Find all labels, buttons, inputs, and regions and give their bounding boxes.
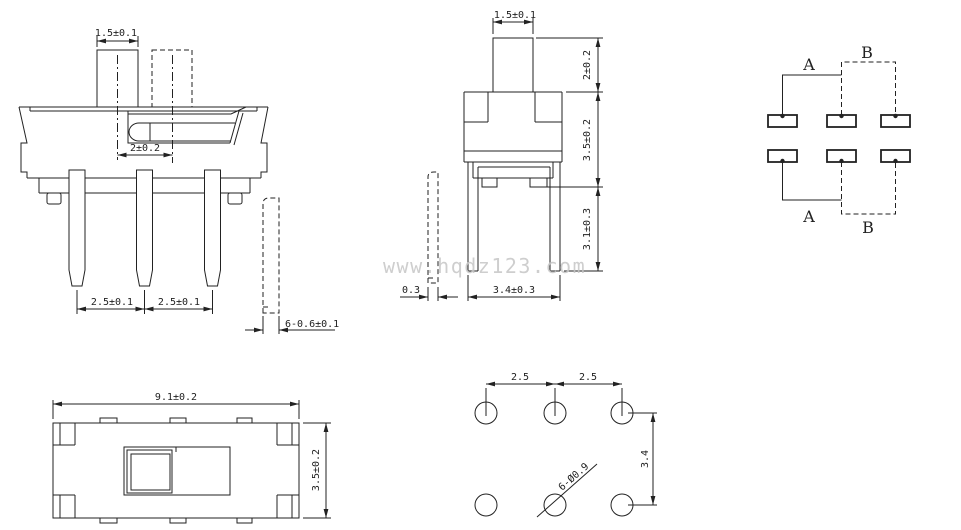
watermark: www.hqdz123.com [383, 254, 586, 278]
front-view: 1.5±0.1 2±0.2 2.5±0.1 2.5±0.1 6-0.6±0.1 [19, 28, 339, 334]
dim-pcb-pitch-left: 2.5 [511, 372, 529, 383]
body-inner-edge [30, 107, 257, 111]
edge-tab [237, 418, 252, 423]
pocket-right-chamfer [230, 111, 243, 145]
schematic-view: A B A B [768, 43, 910, 237]
dim-front-pitch-right: 2.5±0.1 [158, 297, 200, 308]
dim-side-pin-thickness: 0.3 [402, 285, 420, 296]
dim-front-pitch-left: 2.5±0.1 [91, 297, 133, 308]
bottom-tab-left [482, 178, 497, 187]
pocket-left-bottom [128, 111, 230, 143]
junction-dot [839, 114, 843, 118]
dim-top-body-depth: 3.5±0.2 [311, 449, 322, 491]
pcb-layout-view: 2.5 2.5 3.4 6-Ø0.9 [475, 372, 657, 517]
slide-switch-drawing: 1.5±0.1 2±0.2 2.5±0.1 2.5±0.1 6-0.6±0.1 … [0, 0, 961, 530]
label-position-a-top: A [802, 55, 815, 74]
dim-front-knob-width: 1.5±0.1 [95, 28, 137, 39]
body-right-edge [261, 107, 268, 178]
body-outline [53, 423, 299, 518]
dim-pcb-pitch-right: 2.5 [579, 372, 597, 383]
edge-tab [170, 518, 186, 523]
label-position-b-top: B [861, 43, 873, 62]
junction-dot [780, 159, 784, 163]
junction-dot [893, 159, 897, 163]
connection-a-top [783, 75, 842, 115]
dim-side-pin-length: 3.1±0.3 [582, 208, 593, 250]
corner-tab [53, 495, 75, 518]
junction-dot [780, 114, 784, 118]
foot-right [228, 193, 242, 204]
dim-side-bracket-width: 3.4±0.3 [493, 285, 535, 296]
top-view: 9.1±0.2 3.5±0.2 [53, 392, 331, 523]
edge-tab [100, 518, 117, 523]
corner-tab [277, 495, 299, 518]
dim-front-travel: 2±0.2 [130, 143, 160, 154]
pin-3 [205, 170, 221, 286]
connection-b-top [842, 62, 896, 115]
slider-slot [129, 123, 235, 141]
bottom-tab-right [530, 178, 547, 187]
connection-b-bottom [842, 162, 896, 214]
corner-tab [277, 423, 299, 445]
extension-lines [263, 316, 279, 334]
corner-tab [53, 423, 75, 445]
edge-tab [170, 418, 186, 423]
dim-side-knob-height: 2±0.2 [582, 50, 593, 80]
slider-knob-top [127, 450, 172, 493]
pin-1 [69, 170, 85, 286]
body-sides [464, 92, 562, 162]
foot-left [47, 193, 61, 204]
edge-tab [237, 518, 252, 523]
inner-frame [473, 162, 553, 178]
edge-tab [100, 418, 117, 423]
body-left-edge [19, 107, 27, 178]
connection-a-bottom [783, 162, 842, 200]
pin-2 [137, 170, 153, 286]
label-position-b-bottom: B [862, 218, 874, 237]
dim-front-pin-width: 6-0.6±0.1 [285, 319, 339, 330]
dim-pcb-hole-spec: 6-Ø0.9 [556, 461, 591, 494]
shoulder-steps [464, 92, 562, 122]
dim-top-body-width: 9.1±0.2 [155, 392, 197, 403]
actuator-knob-side [493, 38, 533, 92]
dim-side-body-height: 3.5±0.2 [582, 119, 593, 161]
pin-profile-dashed [263, 198, 279, 313]
slider-knob-inner [131, 454, 170, 490]
label-position-a-bottom: A [802, 207, 815, 226]
extension-lines [428, 287, 438, 301]
mounting-hole [544, 494, 566, 516]
junction-dot [839, 159, 843, 163]
dim-side-knob-width: 1.5±0.1 [494, 10, 536, 21]
technical-drawing-canvas: 1.5±0.1 2±0.2 2.5±0.1 2.5±0.1 6-0.6±0.1 … [0, 0, 961, 530]
junction-dot [893, 114, 897, 118]
dim-pcb-row-spacing: 3.4 [640, 450, 651, 468]
mounting-hole [475, 494, 497, 516]
